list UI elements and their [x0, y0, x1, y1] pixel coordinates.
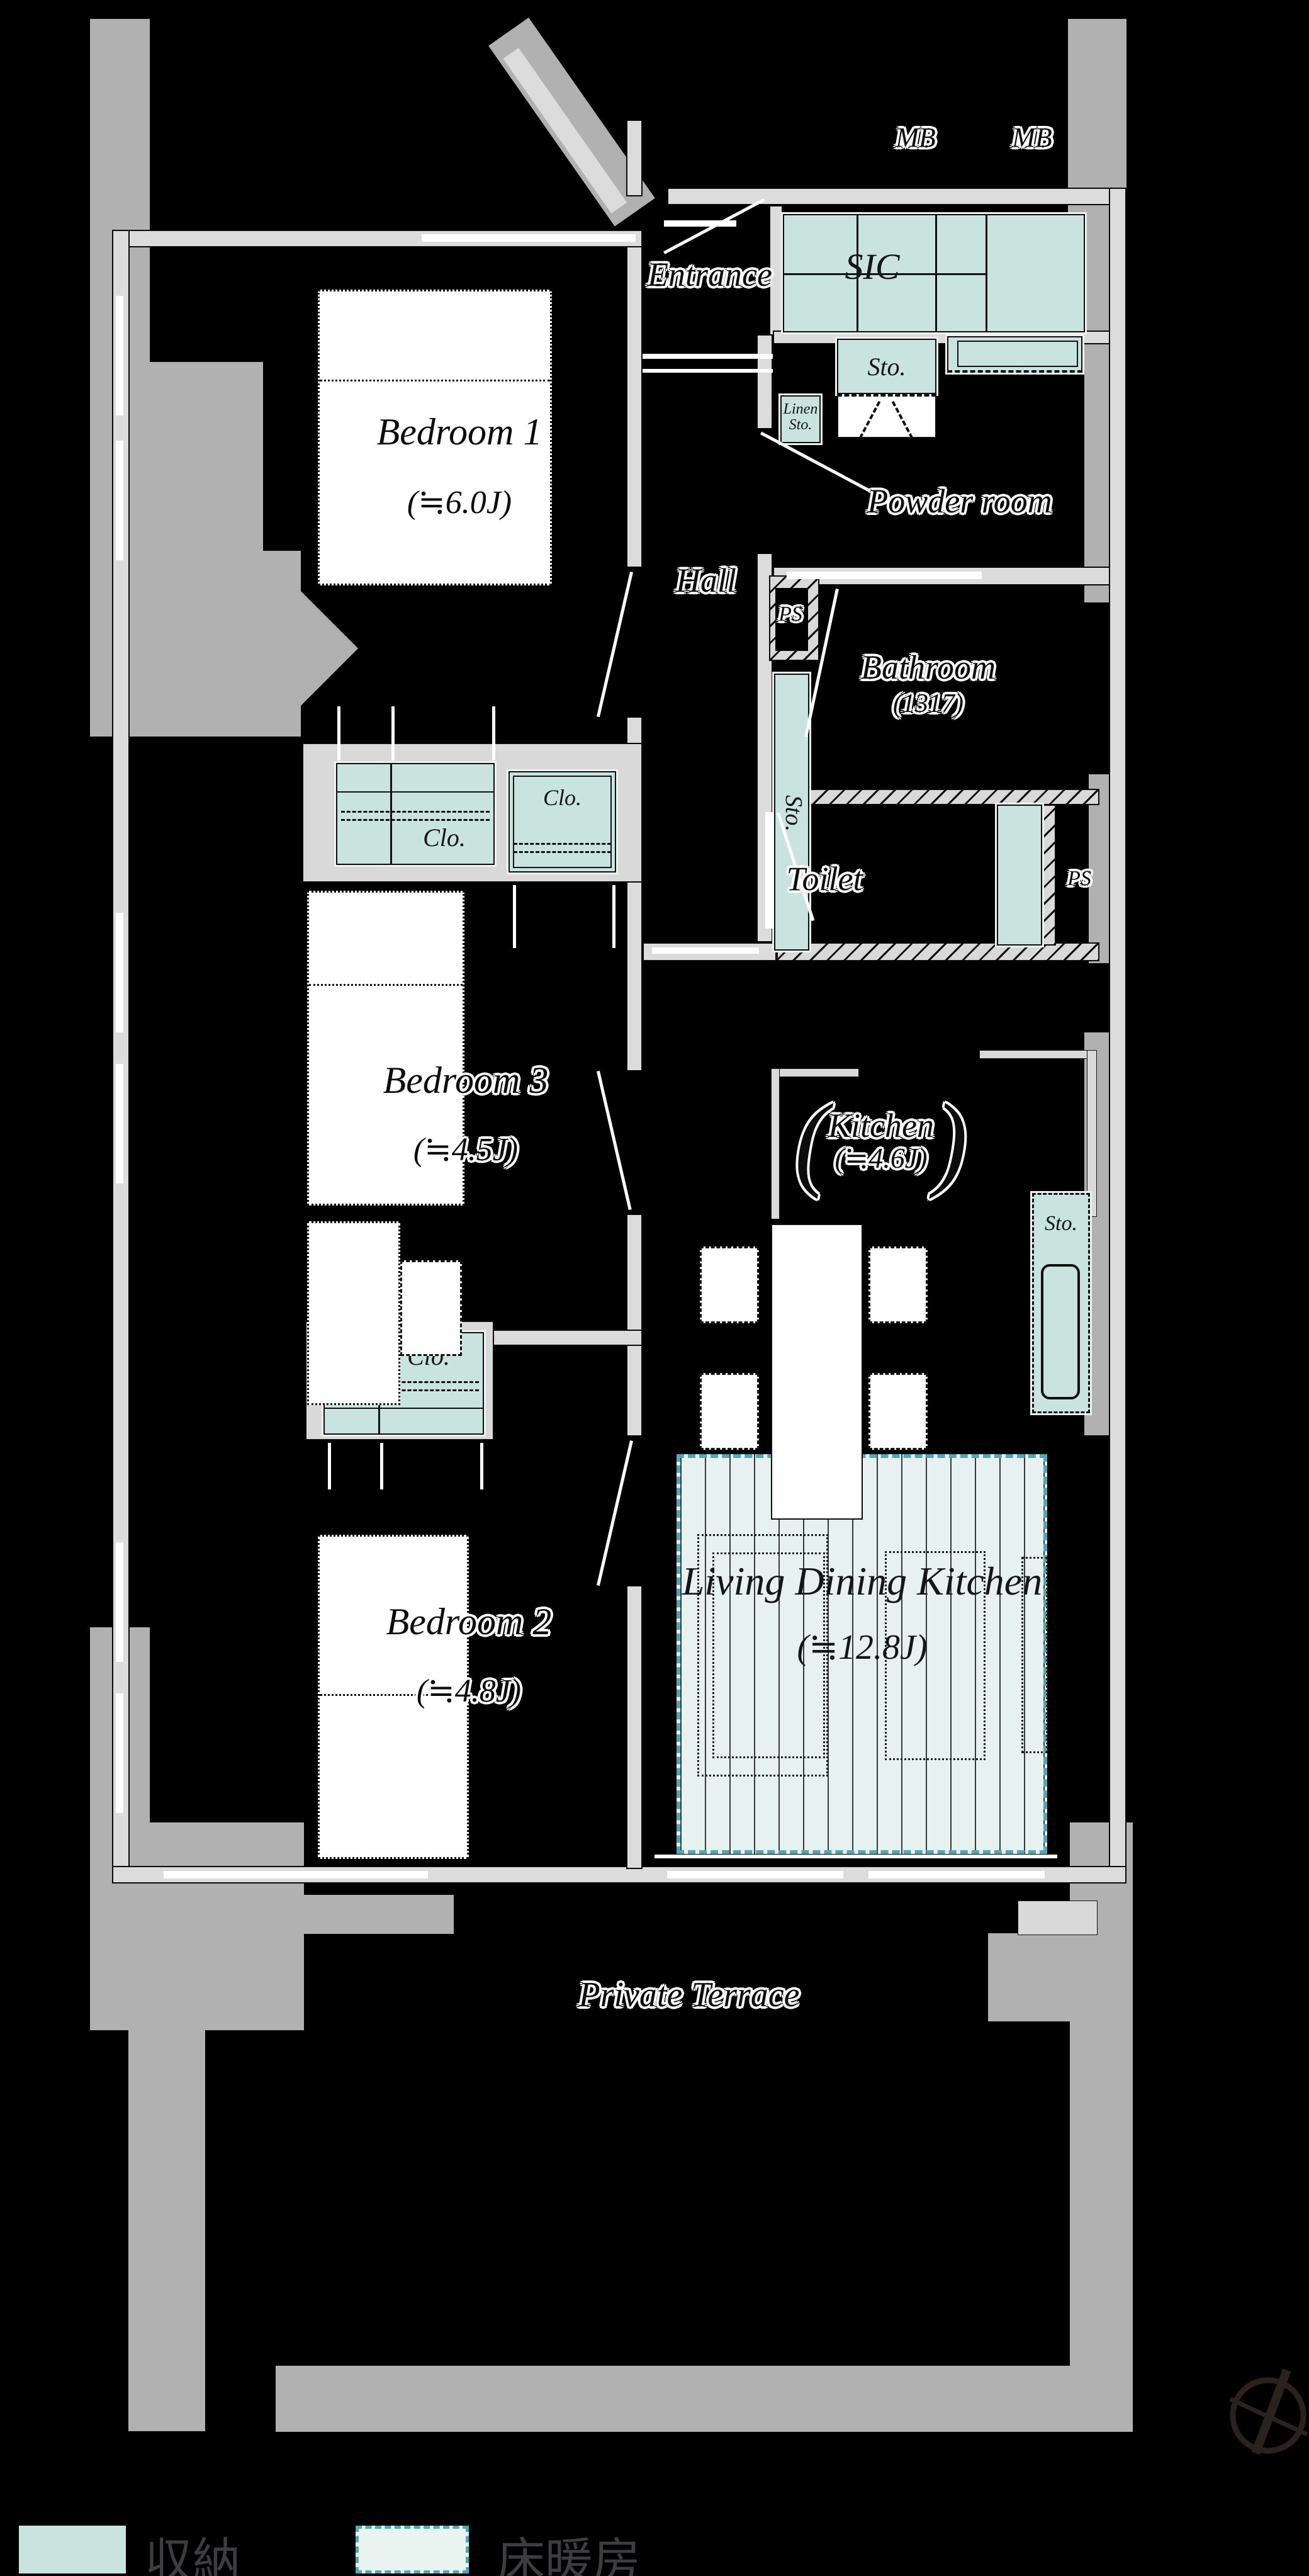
- wall-right: [1109, 188, 1126, 1884]
- window-bedroom1-left-b: [116, 441, 123, 560]
- linen-storage-label: LinenSto.: [782, 402, 819, 433]
- toilet-storage: [997, 805, 1042, 946]
- kitchen-wall-right-h: [979, 1050, 1097, 1059]
- terrace-band-bottom: [276, 2366, 1071, 2432]
- pillar-bottom-right-step: [988, 1933, 1098, 2021]
- desk-bedroom3: [307, 1221, 400, 1405]
- label-kitchen-group: ( Kitchen (≒4.6J) ): [777, 1088, 985, 1194]
- door-gap-powder: [756, 428, 773, 554]
- label-kitchen-size: (≒4.6J): [828, 1143, 934, 1173]
- slider-mark-bed2-a: [328, 1443, 331, 1489]
- hall-ldk-opening: [652, 947, 759, 954]
- label-bedroom2: Bedroom 2: [343, 1602, 595, 1642]
- hatch-toilet-right: [1041, 805, 1056, 946]
- dining-chair-1: [700, 1246, 759, 1323]
- wall-center: [626, 246, 643, 1869]
- hall-storage-label: Sto.: [780, 769, 806, 857]
- kitchen-storage-door: [1041, 1264, 1080, 1399]
- label-bedroom1: Bedroom 1: [334, 412, 585, 452]
- label-bathroom: Bathroom: [812, 650, 1045, 686]
- wall-bed3-bed2: [487, 1330, 643, 1346]
- legend-floor-heating-label: 床暖房: [497, 2522, 641, 2576]
- sic-label: SIC: [809, 248, 935, 286]
- closet-bedroom1-large: Clo.: [336, 763, 495, 865]
- kitchen-paren-close: ): [934, 1085, 967, 1196]
- label-ldk: Living Dining Kitchen: [680, 1560, 1045, 1602]
- window-bedroom2-bottom: [164, 1871, 428, 1878]
- terrace-column-left: [128, 2028, 205, 2431]
- label-powder-room: Powder room: [818, 483, 1101, 519]
- slider-mark-bed3-b: [612, 885, 615, 948]
- window-bedroom3-left-b: [116, 1064, 123, 1183]
- kitchen-paren-open: (: [795, 1085, 828, 1196]
- slider-ldk-a: [667, 1871, 843, 1878]
- slider-mark-bed1-a: [337, 706, 340, 760]
- pillar-bottom-left-foot: [233, 1895, 454, 1934]
- window-bedroom1-left-a: [116, 296, 123, 415]
- label-mb-1: MB: [884, 123, 947, 152]
- window-bedroom2-left-a: [116, 1542, 123, 1662]
- entrance-step-2: [643, 369, 773, 373]
- label-hall: Hall: [649, 563, 763, 599]
- slider-mark-bed2-b: [380, 1443, 383, 1489]
- window-bedroom3-left-a: [116, 913, 123, 1032]
- compass-icon: [1224, 2364, 1309, 2458]
- label-ldk-size: (≒12.8J): [680, 1629, 1045, 1666]
- kitchen-storage: Sto.: [1032, 1193, 1090, 1413]
- kitchen-wall-right-v: [1087, 1050, 1097, 1217]
- wall-top-right: [667, 188, 1126, 205]
- entrance-storage-door: [837, 394, 936, 438]
- entrance-storage-label: Sto.: [838, 354, 935, 380]
- closet-label-1: Clo.: [394, 825, 495, 851]
- label-private-terrace: Private Terrace: [548, 1977, 831, 2014]
- label-bedroom3: Bedroom 3: [340, 1061, 592, 1100]
- entrance-step-1: [643, 354, 773, 359]
- slider-mark-bed3-a: [513, 885, 516, 948]
- slider-ldk-track: [654, 1855, 1057, 1858]
- slider-ldk-b: [868, 1871, 1045, 1878]
- label-ps-upper: PS: [772, 603, 809, 626]
- label-entrance: Entrance: [634, 257, 785, 293]
- chair-bedroom3: [400, 1260, 462, 1356]
- slider-mark-bed1-c: [492, 706, 495, 760]
- label-bedroom1-size: (≒6.0J): [334, 486, 585, 521]
- floor-plan: SIC Sto. LinenSto. Sto. Sto. Clo. Clo. C…: [0, 0, 1309, 2576]
- laundry-counter: [947, 336, 1082, 373]
- slider-mark-bed2-c: [480, 1443, 483, 1489]
- label-kitchen: Kitchen: [828, 1108, 934, 1144]
- legend-storage-swatch: [19, 2526, 126, 2573]
- label-bedroom2-size: (≒4.8J): [343, 1675, 595, 1709]
- kitchen-storage-label: Sto.: [1034, 1212, 1088, 1235]
- step-bottom-right: [1018, 1901, 1098, 1935]
- legend-floor-heating-swatch: [356, 2526, 469, 2573]
- door-gap-bedroom3: [626, 1070, 643, 1215]
- slider-mark-bed1-b: [391, 706, 395, 760]
- sic-closet: SIC: [783, 214, 1085, 332]
- label-bathroom-size: (1317): [812, 690, 1045, 718]
- legend: 収納 床暖房: [0, 2518, 755, 2576]
- window-bedroom1-top: [422, 234, 636, 242]
- dining-chair-3: [868, 1246, 928, 1323]
- window-bathroom: [787, 572, 982, 579]
- dining-chair-2: [700, 1373, 759, 1450]
- label-ps-lower: PS: [1057, 867, 1101, 890]
- wall-entrance-approach: [626, 120, 643, 196]
- label-mb-2: MB: [1001, 123, 1064, 152]
- entrance-storage: Sto.: [837, 339, 936, 394]
- dining-table: [771, 1224, 863, 1520]
- washer-outline: [957, 341, 1078, 367]
- label-toilet: Toilet: [761, 861, 887, 897]
- legend-storage-label: 収納: [145, 2522, 240, 2576]
- window-bedroom2-left-b: [116, 1693, 123, 1813]
- closet-bedroom1-small: Clo.: [508, 771, 616, 873]
- label-bedroom3-size: (≒4.5J): [340, 1133, 592, 1168]
- kitchen-wall-left-h: [771, 1068, 859, 1077]
- linen-storage: LinenSto.: [780, 395, 821, 443]
- closet-label-2: Clo.: [510, 786, 615, 810]
- hatch-toilet-top: [777, 789, 1099, 805]
- dining-chair-4: [868, 1373, 928, 1450]
